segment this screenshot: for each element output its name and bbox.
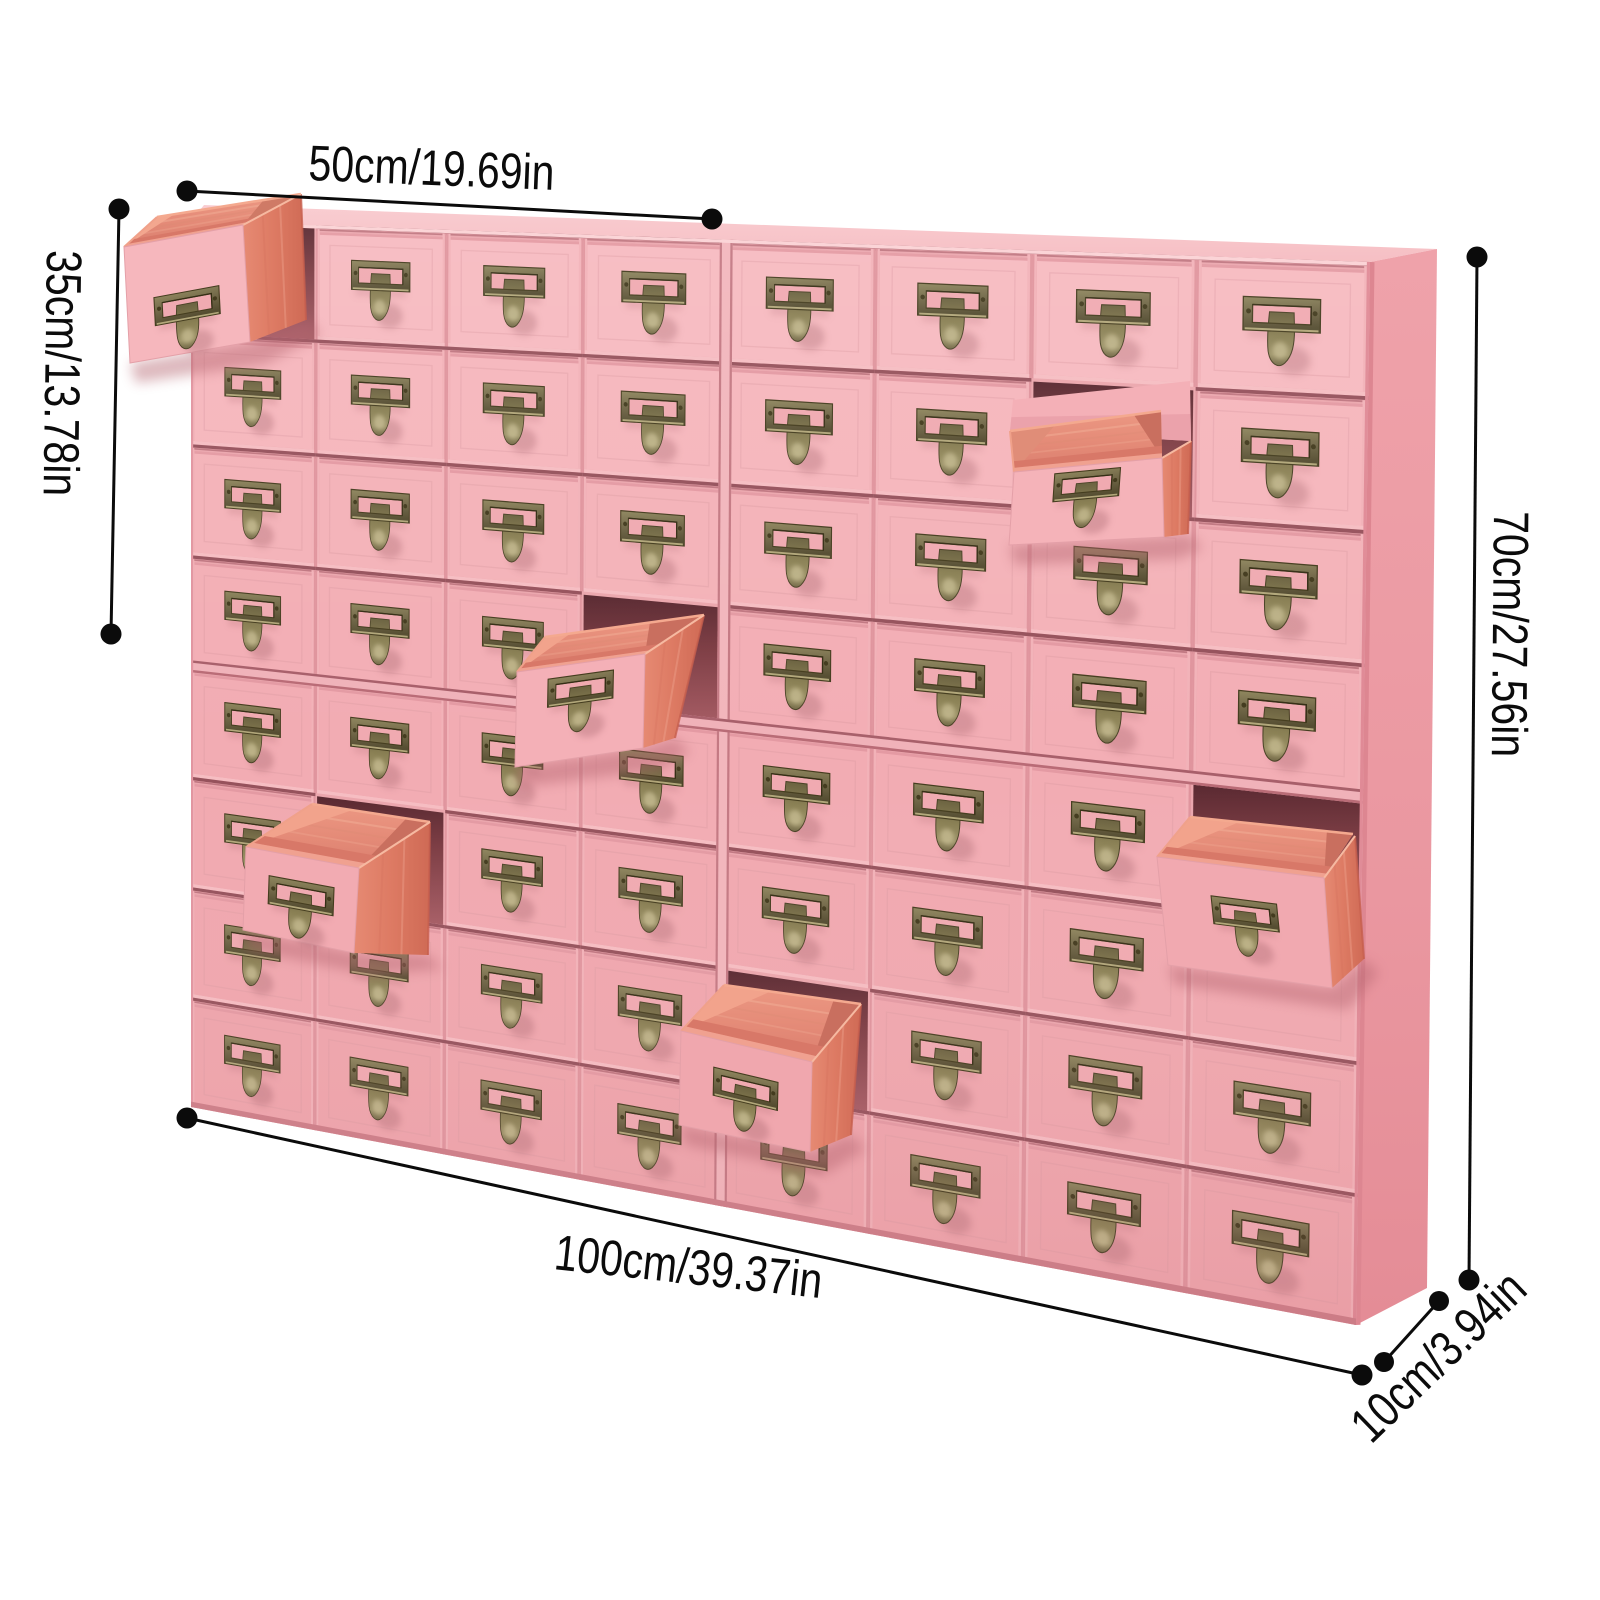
svg-text:50cm/19.69in: 50cm/19.69in	[308, 135, 556, 201]
svg-text:70cm/27.56in: 70cm/27.56in	[1481, 511, 1539, 757]
svg-text:100cm/39.37in: 100cm/39.37in	[552, 1224, 825, 1309]
svg-text:35cm/13.78in: 35cm/13.78in	[33, 250, 92, 497]
